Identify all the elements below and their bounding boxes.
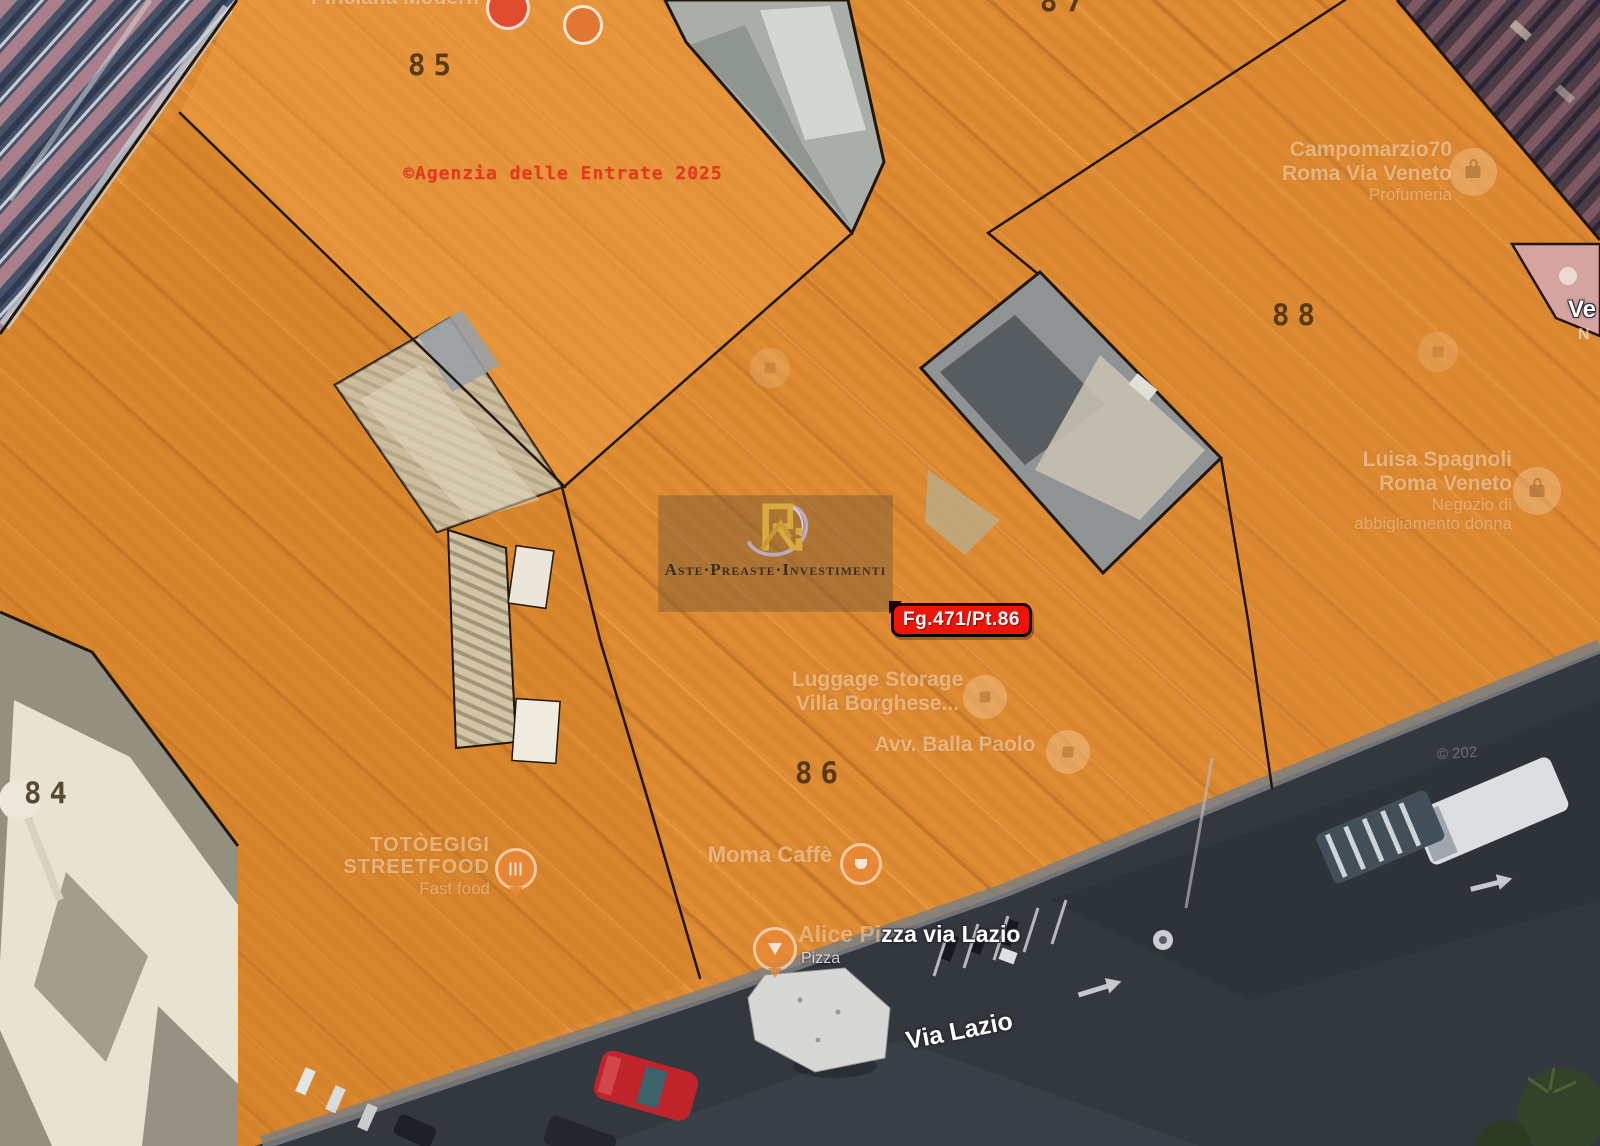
secondary-map-pin-icon[interactable] [563, 5, 603, 45]
agency-watermark: Aste·Preaste·Investimenti [659, 496, 892, 611]
poi-name-bright-part: zza via Lazio [881, 921, 1020, 947]
poi-luggage-storage[interactable]: Luggage Storage Villa Borghese... [785, 668, 970, 715]
pizza-slice-icon [768, 943, 782, 955]
place-icon [1063, 747, 1074, 758]
poi-category-line2: abbigliamento donna [1330, 514, 1512, 533]
coffee-cup-icon [855, 859, 867, 869]
poi-veneto-clipped[interactable]: Ve N [1568, 296, 1596, 344]
poi-avv-balla-paolo[interactable]: Avv. Balla Paolo [865, 733, 1045, 757]
poi-category: N [1568, 325, 1596, 344]
fork-knife-icon [510, 863, 523, 876]
imagery-credit-text: © 202 [1436, 744, 1477, 764]
watermark-brand-text: Aste·Preaste·Investimenti [665, 560, 887, 580]
parcel-label-87: 87 [1040, 0, 1091, 18]
poi-name-line2: Villa Borghese... [785, 692, 970, 716]
poi-alice-category: Pizza [801, 950, 840, 968]
poi-category: Profumeria [1240, 185, 1452, 204]
poi-category: Fast food [340, 879, 490, 898]
place-icon [1433, 347, 1444, 358]
poi-totoegigi-streetfood[interactable]: TOTÒEGIGI STREETFOOD Fast food [340, 834, 490, 898]
parcel-label-84: 84 [24, 776, 75, 810]
place-icon [765, 363, 776, 374]
poi-luisa-spagnoli[interactable]: Luisa Spagnoli Roma Veneto Negozio di ab… [1330, 448, 1512, 533]
avvocato-pin[interactable] [1046, 730, 1090, 774]
totoegigi-restaurant-pin[interactable] [495, 848, 537, 890]
poi-name: Ve [1568, 296, 1596, 325]
poi-alice-pizza[interactable]: Alice Pizza via Lazio [798, 921, 1020, 948]
cadastral-map-canvas[interactable]: Pinciana Modern Campomarzio70 Roma Via V… [0, 0, 1600, 1146]
poi-category: Negozio di [1330, 495, 1512, 514]
campomarzio-store-pin[interactable] [1449, 148, 1497, 196]
poi-name-line2: Roma Via Veneto [1240, 162, 1452, 186]
poi-name-line2: STREETFOOD [340, 856, 490, 878]
api-monogram-logo [730, 496, 822, 562]
parcel-label-88: 88 [1272, 298, 1323, 332]
shopping-bag-icon [1530, 485, 1545, 497]
shopping-bag-icon [1466, 166, 1481, 178]
unlabeled-poi-pin-2[interactable] [1418, 332, 1458, 372]
alice-pizza-pin[interactable] [753, 927, 797, 971]
poi-name-faint-part: Alice Pi [798, 921, 881, 947]
poi-campomarzio70[interactable]: Campomarzio70 Roma Via Veneto Profumeria [1240, 138, 1452, 204]
poi-name: TOTÒEGIGI [340, 834, 490, 856]
poi-name-line2: Roma Veneto [1330, 472, 1512, 496]
poi-name: Pinciana Modern [300, 0, 490, 10]
agenzia-entrate-copyright: ©Agenzia delle Entrate 2025 [403, 163, 723, 184]
poi-name: Moma Caffè [700, 843, 840, 868]
poi-name: Luggage Storage [785, 668, 970, 692]
poi-pinciana-modern[interactable]: Pinciana Modern [300, 0, 490, 10]
poi-name: Campomarzio70 [1240, 138, 1452, 162]
parcel-label-85: 85 [408, 48, 459, 82]
poi-moma-caffe[interactable]: Moma Caffè [700, 843, 840, 868]
parcel-marker-badge[interactable]: Fg.471/Pt.86 [891, 603, 1032, 637]
moma-caffe-pin[interactable] [840, 843, 882, 885]
luisa-spagnoli-store-pin[interactable] [1513, 467, 1561, 515]
poi-name: Luisa Spagnoli [1330, 448, 1512, 472]
poi-name: Avv. Balla Paolo [865, 733, 1045, 757]
place-icon [980, 692, 991, 703]
parcel-label-86: 86 [795, 756, 846, 790]
unlabeled-poi-pin[interactable] [750, 348, 790, 388]
